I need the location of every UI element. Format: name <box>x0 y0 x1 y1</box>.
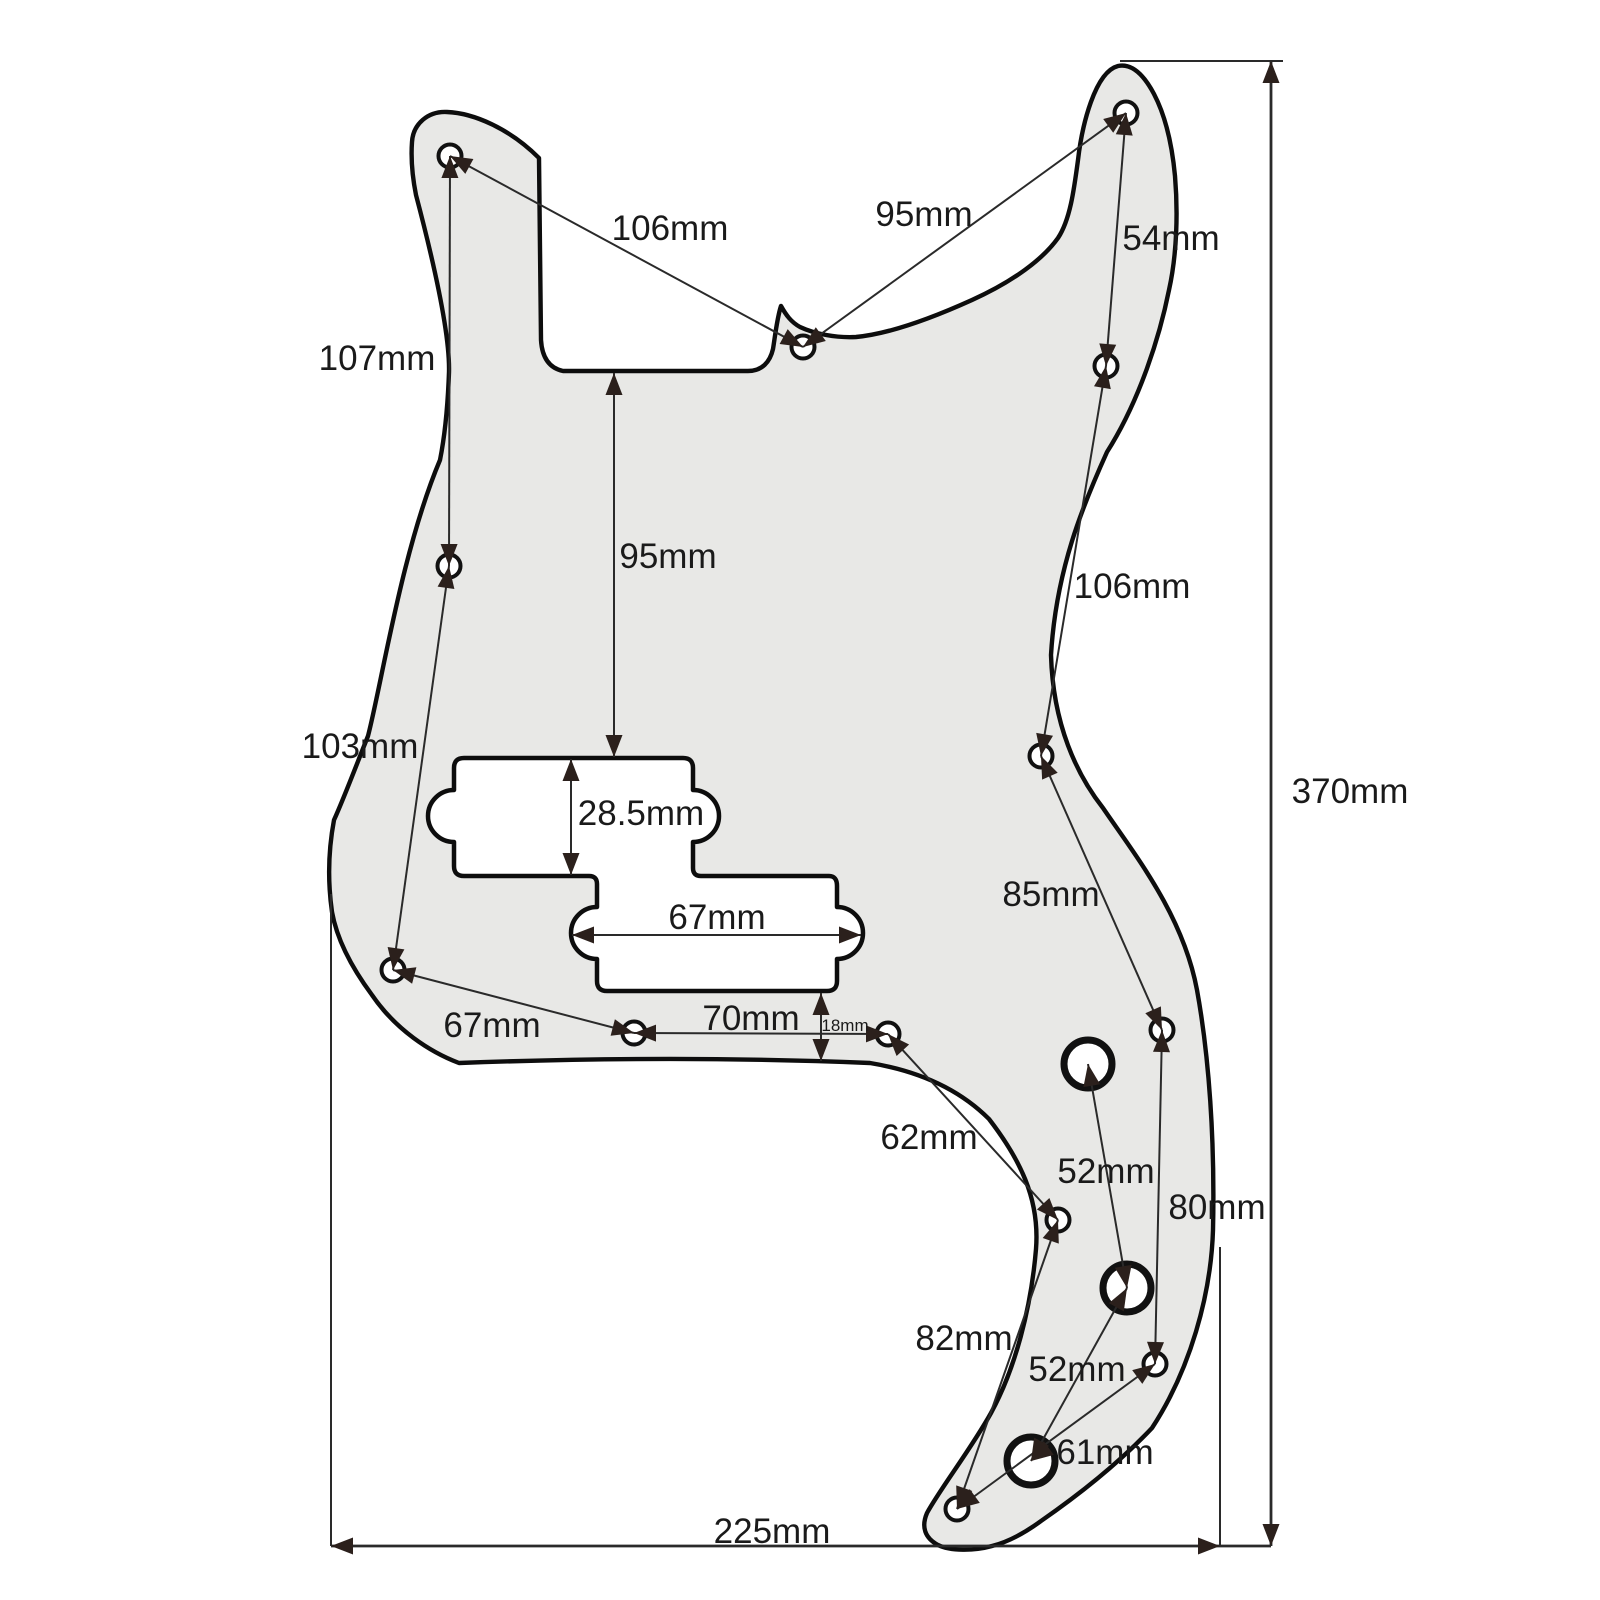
svg-text:370mm: 370mm <box>1292 772 1409 811</box>
svg-text:18mm: 18mm <box>821 1016 868 1035</box>
svg-text:95mm: 95mm <box>619 537 716 576</box>
svg-text:82mm: 82mm <box>915 1319 1012 1358</box>
svg-text:67mm: 67mm <box>668 898 765 937</box>
svg-text:107mm: 107mm <box>319 339 436 378</box>
svg-text:52mm: 52mm <box>1028 1350 1125 1389</box>
svg-text:103mm: 103mm <box>302 727 419 766</box>
svg-text:61mm: 61mm <box>1056 1433 1153 1472</box>
svg-text:67mm: 67mm <box>443 1006 540 1045</box>
svg-text:54mm: 54mm <box>1122 219 1219 258</box>
svg-text:70mm: 70mm <box>702 999 799 1038</box>
svg-text:225mm: 225mm <box>714 1512 831 1551</box>
svg-text:106mm: 106mm <box>612 209 729 248</box>
svg-text:62mm: 62mm <box>880 1118 977 1157</box>
svg-text:95mm: 95mm <box>875 195 972 234</box>
svg-text:52mm: 52mm <box>1057 1152 1154 1191</box>
svg-text:28.5mm: 28.5mm <box>578 794 704 833</box>
svg-text:80mm: 80mm <box>1168 1188 1265 1227</box>
svg-text:85mm: 85mm <box>1002 875 1099 914</box>
svg-text:106mm: 106mm <box>1074 567 1191 606</box>
